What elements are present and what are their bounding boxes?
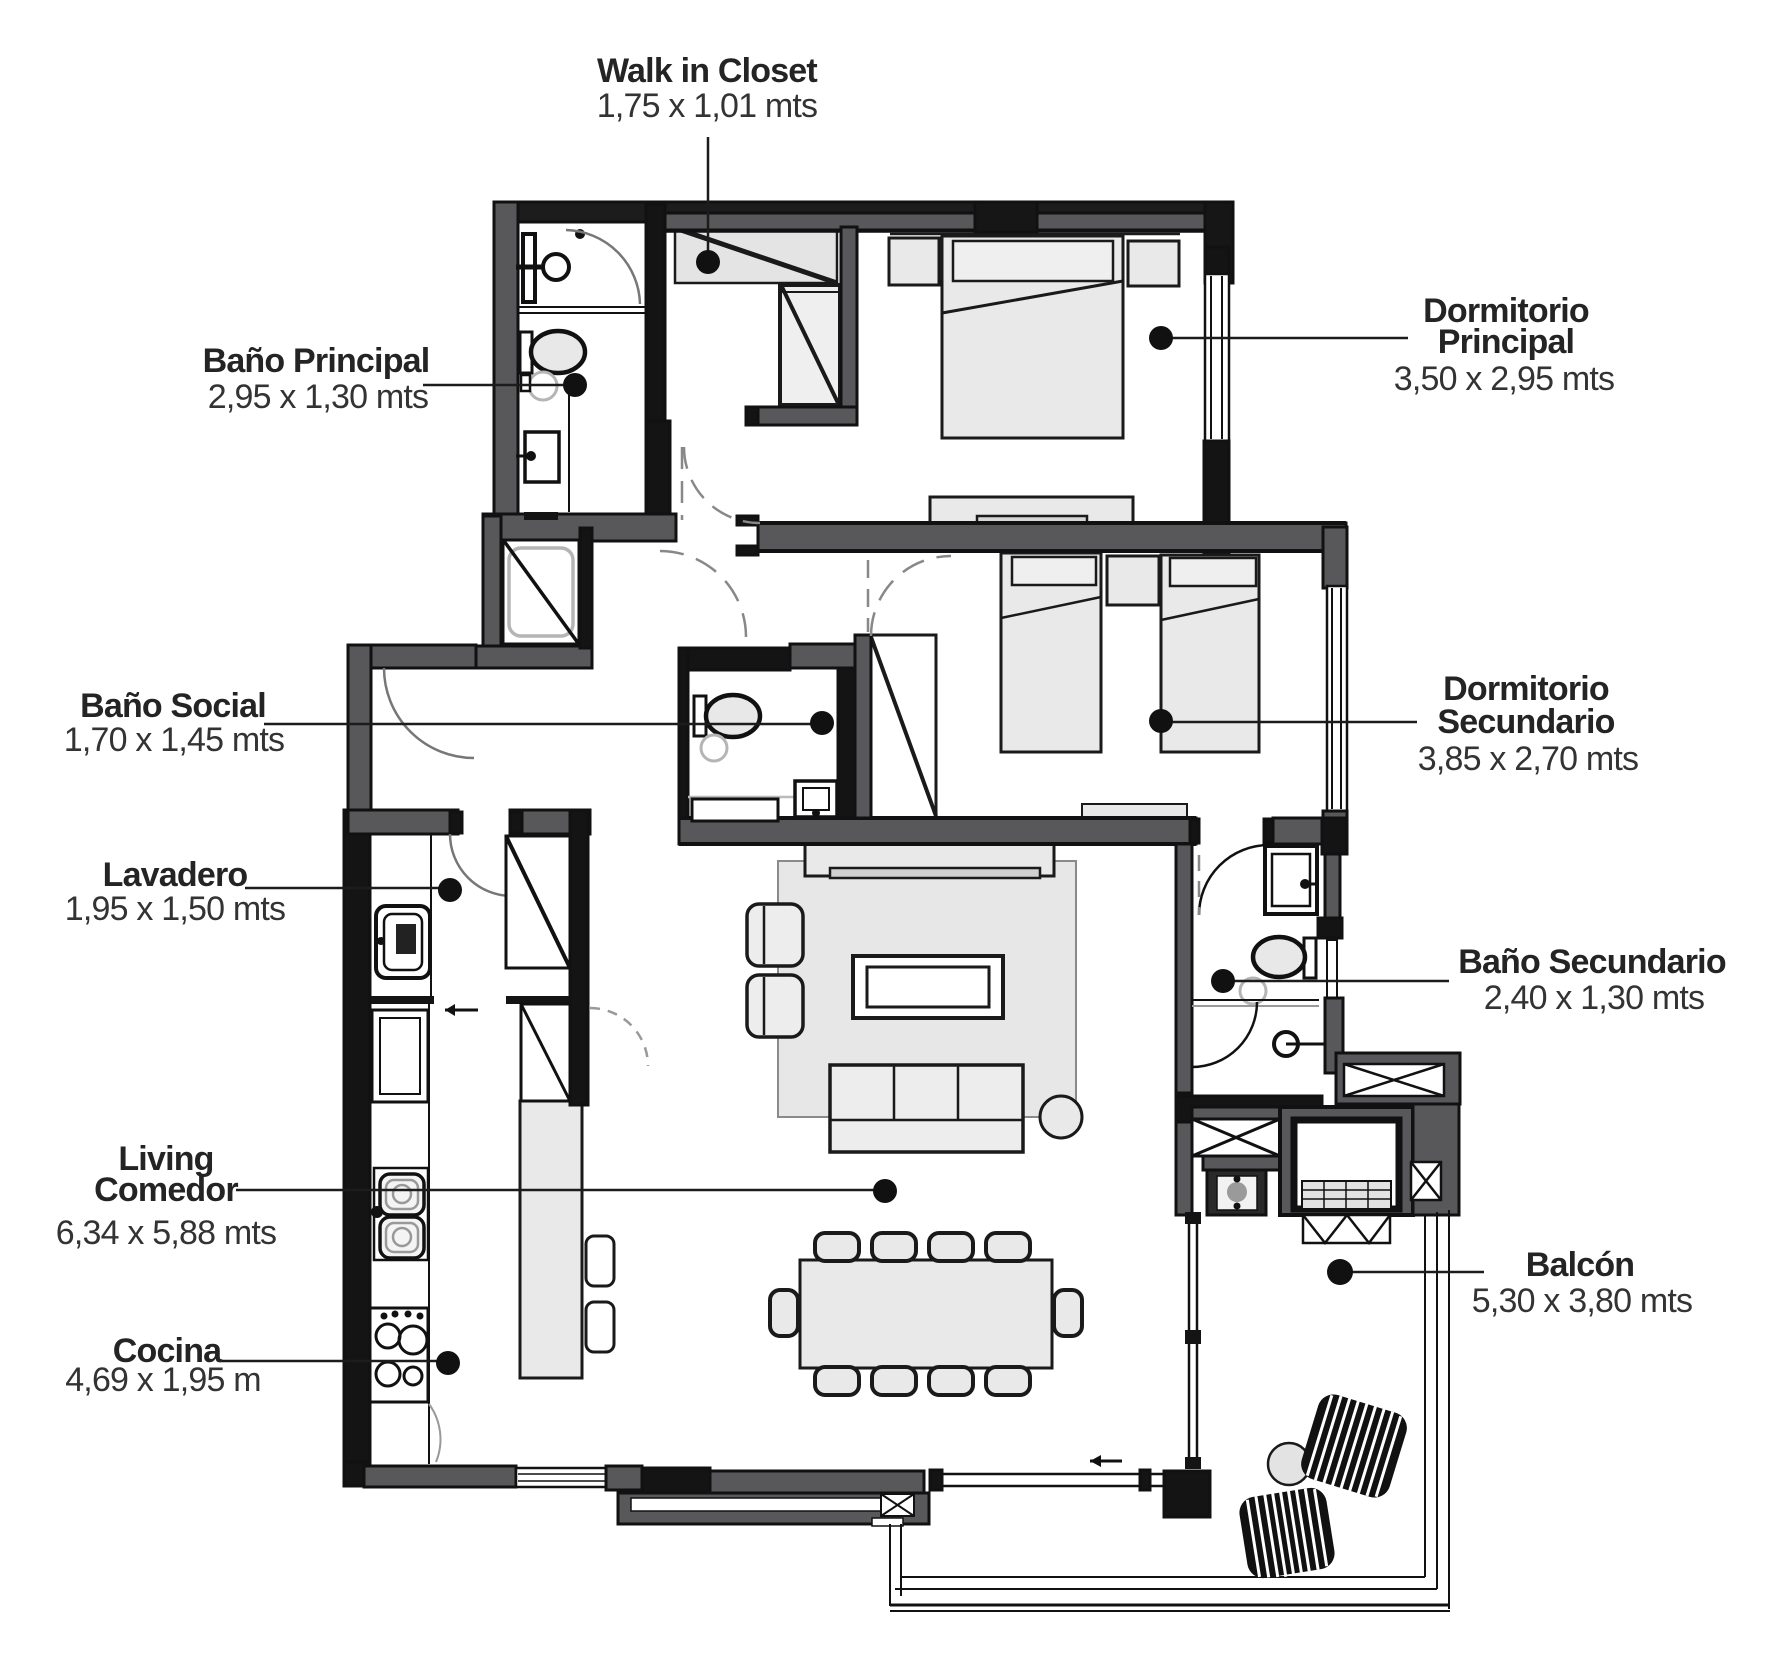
svg-text:1,75 x 1,01 mts: 1,75 x 1,01 mts <box>597 87 817 125</box>
svg-text:6,34 x 5,88 mts: 6,34 x 5,88 mts <box>56 1214 276 1252</box>
svg-text:Walk in Closet: Walk in Closet <box>597 52 817 90</box>
svg-text:3,50 x 2,95 mts: 3,50 x 2,95 mts <box>1394 360 1614 398</box>
svg-text:Balcón: Balcón <box>1526 1246 1635 1284</box>
svg-text:1,70 x 1,45 mts: 1,70 x 1,45 mts <box>64 721 284 759</box>
svg-text:4,69 x 1,95 m: 4,69 x 1,95 m <box>65 1361 261 1399</box>
svg-text:3,85 x 2,70 mts: 3,85 x 2,70 mts <box>1418 740 1638 778</box>
svg-text:Baño Social: Baño Social <box>80 687 266 725</box>
svg-text:Secundario: Secundario <box>1437 703 1614 741</box>
svg-text:5,30 x 3,80 mts: 5,30 x 3,80 mts <box>1472 1282 1692 1320</box>
svg-text:2,95 x 1,30 mts: 2,95 x 1,30 mts <box>208 378 428 416</box>
svg-text:Principal: Principal <box>1438 323 1574 361</box>
svg-text:Baño Principal: Baño Principal <box>203 342 430 380</box>
svg-text:1,95 x 1,50 mts: 1,95 x 1,50 mts <box>65 890 285 928</box>
svg-text:2,40 x 1,30 mts: 2,40 x 1,30 mts <box>1484 979 1704 1017</box>
svg-text:Comedor: Comedor <box>94 1171 238 1209</box>
svg-text:Baño Secundario: Baño Secundario <box>1458 943 1726 981</box>
svg-text:Lavadero: Lavadero <box>103 856 248 894</box>
